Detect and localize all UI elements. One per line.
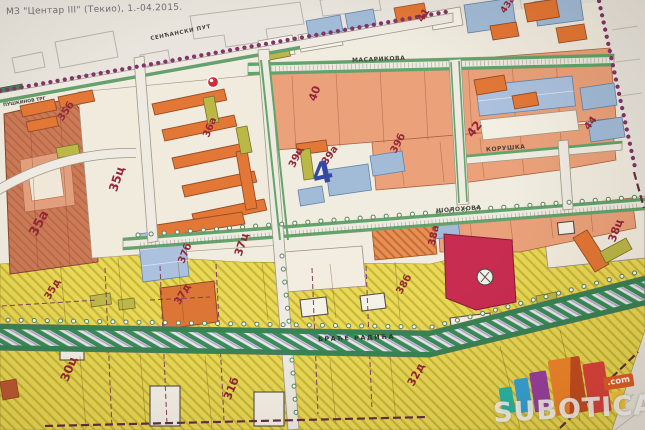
- logo-tld-badge: .com: [603, 373, 635, 391]
- subotica-logo: .com SUBOTICA: [490, 346, 645, 430]
- zoning-map-photo: СЕНЋАНСКИ ПУТ МАСАРИКОВА КОРУШКА ШОЛОХОВ…: [0, 0, 645, 430]
- cream-parcel-centre: [284, 246, 366, 292]
- logo-wordmark: SUBOTICA: [492, 390, 645, 429]
- red-marker-icon: [208, 77, 219, 88]
- crimson-parcel: [444, 234, 516, 310]
- logo-tld-text: .com: [606, 375, 630, 388]
- block-37d-parcel: [160, 281, 218, 329]
